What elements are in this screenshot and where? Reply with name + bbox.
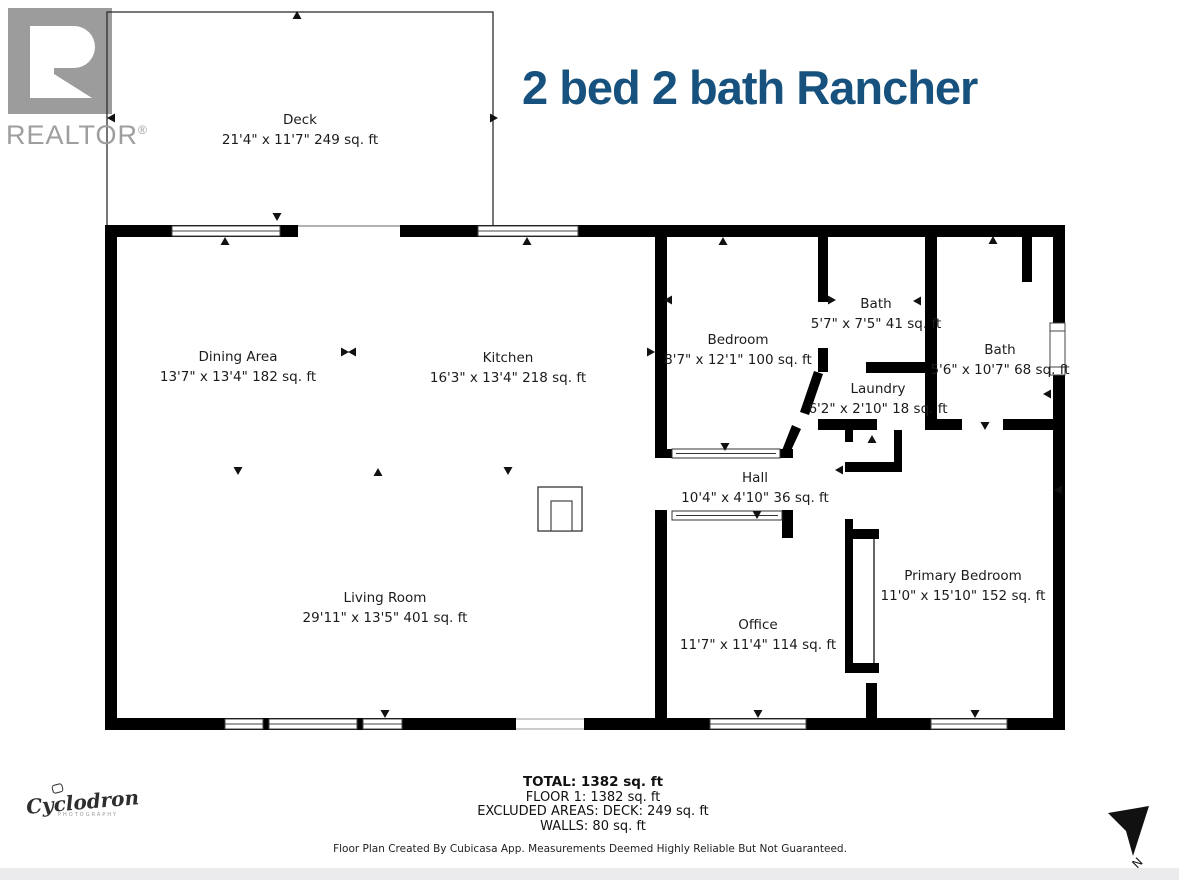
tick-mark	[221, 237, 230, 245]
tick-mark	[381, 710, 390, 718]
room-name: Bath	[930, 340, 1069, 360]
fireplace-icon	[538, 487, 582, 531]
tick-mark	[273, 213, 282, 221]
tick-mark	[348, 348, 356, 357]
room-label-laundry: Laundry6'2" x 2'10" 18 sq. ft	[808, 379, 947, 419]
tick-mark	[754, 710, 763, 718]
room-dimensions: 8'7" x 12'1" 100 sq. ft	[664, 350, 812, 370]
tick-mark	[835, 466, 843, 475]
tick-mark	[868, 435, 877, 443]
room-dimensions: 6'2" x 2'10" 18 sq. ft	[808, 399, 947, 419]
room-dimensions: 5'7" x 7'5" 41 sq. ft	[811, 314, 942, 334]
room-label-hall: Hall10'4" x 4'10" 36 sq. ft	[681, 468, 829, 508]
room-dimensions: 5'6" x 10'7" 68 sq. ft	[930, 360, 1069, 380]
room-name: Kitchen	[430, 348, 586, 368]
registered-mark: ®	[138, 123, 148, 137]
room-label-kitchen: Kitchen16'3" x 13'4" 218 sq. ft	[430, 348, 586, 388]
tick-mark	[341, 348, 349, 357]
window	[710, 719, 806, 729]
tick-mark	[989, 236, 998, 244]
room-name: Bedroom	[664, 330, 812, 350]
room-dimensions: 13'7" x 13'4" 182 sq. ft	[160, 367, 316, 387]
tick-mark	[374, 468, 383, 476]
area-summary: TOTAL: 1382 sq. ft FLOOR 1: 1382 sq. ft …	[293, 776, 893, 834]
tick-mark	[1043, 390, 1051, 399]
photographer-logo: Cyclodron PHOTOGRAPHY	[26, 790, 146, 818]
tick-mark	[971, 710, 980, 718]
room-label-office: Office11'7" x 11'4" 114 sq. ft	[680, 615, 836, 655]
window	[172, 226, 280, 236]
photographer-name: Cyclodron	[25, 785, 140, 819]
room-dimensions: 10'4" x 4'10" 36 sq. ft	[681, 488, 829, 508]
tick-mark	[523, 237, 532, 245]
room-name: Bath	[811, 294, 942, 314]
room-label-primary-bedroom: Primary Bedroom11'0" x 15'10" 152 sq. ft	[881, 566, 1046, 606]
patio-opening	[516, 718, 584, 730]
tick-mark	[234, 467, 243, 475]
room-name: Office	[680, 615, 836, 635]
room-label-bath-1: Bath5'7" x 7'5" 41 sq. ft	[811, 294, 942, 334]
tick-mark	[490, 114, 498, 123]
room-dimensions: 21'4" x 11'7" 249 sq. ft	[222, 130, 378, 150]
room-name: Hall	[681, 468, 829, 488]
cased-opening	[672, 511, 782, 520]
tick-mark	[504, 467, 513, 475]
cased-opening	[672, 449, 780, 458]
realtor-text: REALTOR	[6, 120, 138, 150]
summary-total: TOTAL: 1382 sq. ft	[293, 776, 893, 790]
bottom-band	[0, 868, 1179, 880]
room-label-living-room: Living Room29'11" x 13'5" 401 sq. ft	[303, 588, 468, 628]
deck-door-opening	[298, 225, 400, 237]
tick-mark	[981, 422, 990, 430]
disclaimer-text: Floor Plan Created By Cubicasa App. Meas…	[190, 843, 990, 855]
floor-plan-drawing	[0, 0, 1179, 880]
room-dimensions: 11'7" x 11'4" 114 sq. ft	[680, 635, 836, 655]
summary-walls: WALLS: 80 sq. ft	[293, 820, 893, 834]
realtor-wordmark: REALTOR®	[6, 120, 126, 151]
room-label-dining-area: Dining Area13'7" x 13'4" 182 sq. ft	[160, 347, 316, 387]
room-name: Primary Bedroom	[881, 566, 1046, 586]
floor-plan-page: 2 bed 2 bath Rancher REALTOR® Deck21'4" …	[0, 0, 1179, 880]
window	[269, 719, 357, 729]
summary-floor: FLOOR 1: 1382 sq. ft	[293, 791, 893, 805]
tick-mark	[719, 237, 728, 245]
window	[225, 719, 263, 729]
room-name: Deck	[222, 110, 378, 130]
window	[478, 226, 578, 236]
room-dimensions: 11'0" x 15'10" 152 sq. ft	[881, 586, 1046, 606]
window	[931, 719, 1007, 729]
room-name: Laundry	[808, 379, 947, 399]
room-label-bath-2: Bath5'6" x 10'7" 68 sq. ft	[930, 340, 1069, 380]
page-title: 2 bed 2 bath Rancher	[522, 60, 1082, 115]
north-arrow-icon	[1108, 806, 1149, 856]
room-label-deck: Deck21'4" x 11'7" 249 sq. ft	[222, 110, 378, 150]
realtor-logo	[8, 8, 112, 114]
room-dimensions: 16'3" x 13'4" 218 sq. ft	[430, 368, 586, 388]
room-label-bedroom: Bedroom8'7" x 12'1" 100 sq. ft	[664, 330, 812, 370]
window	[363, 719, 402, 729]
tick-mark	[647, 348, 655, 357]
room-dimensions: 29'11" x 13'5" 401 sq. ft	[303, 608, 468, 628]
summary-excluded: EXCLUDED AREAS: DECK: 249 sq. ft	[293, 805, 893, 819]
room-name: Dining Area	[160, 347, 316, 367]
room-name: Living Room	[303, 588, 468, 608]
